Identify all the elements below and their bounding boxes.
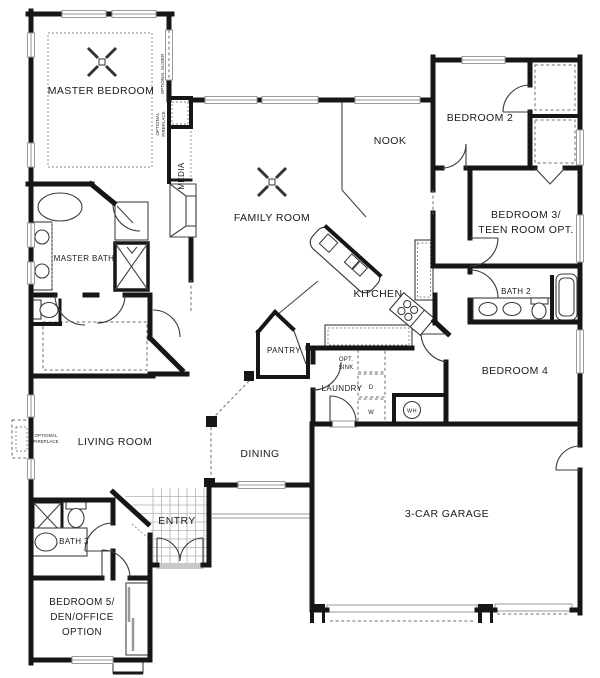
window [62, 11, 106, 18]
window [28, 143, 35, 167]
walls-layer [28, 11, 580, 663]
door-arc [113, 205, 140, 231]
door-arc [442, 144, 466, 168]
column-post [204, 478, 215, 487]
toilet-icon [40, 303, 58, 318]
label-opt-sink-1: OPT. [339, 357, 353, 363]
label-optional-fireplace-master-1: OPTIONAL [155, 112, 160, 135]
window [205, 97, 257, 104]
garage-entry-door [330, 421, 357, 427]
label-washer: W [368, 410, 374, 416]
column-post [244, 371, 254, 381]
window [262, 97, 318, 104]
label-optional-slider: OPTIONAL SLIDER [160, 54, 165, 95]
door-arc [102, 550, 130, 578]
label-bedroom3-line2: TEEN ROOM OPT. [478, 224, 573, 236]
garage-door-8ft [495, 604, 572, 611]
window [577, 215, 584, 262]
doors-layer [55, 85, 580, 578]
garage-door-16ft [327, 605, 477, 612]
door-arc [85, 523, 113, 551]
label-bath2: BATH 2 [501, 287, 531, 296]
entry-threshold [156, 563, 204, 569]
window [28, 33, 35, 57]
label-water-heater: WH [407, 409, 417, 415]
toilet-icon [68, 509, 84, 528]
door-arc [470, 270, 498, 298]
floor-plan-svg: MASTER BEDROOM FAMILY ROOM NOOK BEDROOM … [0, 0, 600, 678]
window [112, 11, 156, 18]
ceiling-fan-icon [258, 168, 286, 196]
optional-slider-window [166, 30, 173, 80]
sink-icon [479, 303, 497, 316]
label-bedroom5-line3: OPTION [62, 627, 102, 638]
label-master-bath: MASTER BATH [54, 254, 115, 263]
kitchen-island [307, 224, 384, 297]
window [28, 223, 35, 247]
optional-fireplace-living-box [12, 420, 31, 458]
door-arc [180, 538, 203, 561]
label-laundry: LAUNDRY [322, 384, 363, 393]
label-bedroom5-line2: DEN/OFFICE [50, 612, 113, 623]
label-opt-sink-2: SINK [339, 365, 354, 371]
window [577, 330, 584, 373]
door-arc [157, 538, 180, 561]
floor-plan-page: MASTER BEDROOM FAMILY ROOM NOOK BEDROOM … [0, 0, 600, 678]
window [462, 57, 505, 64]
label-garage: 3-CAR GARAGE [405, 508, 489, 520]
door-arc [97, 295, 125, 323]
label-kitchen: KITCHEN [354, 288, 403, 300]
label-optional-fireplace-master-2: FIREPLACE [161, 111, 166, 136]
door-arc [556, 446, 580, 470]
door-arc [470, 238, 498, 266]
closet-shelves [535, 65, 575, 110]
door-arc [330, 396, 356, 422]
label-bedroom3-line1: BEDROOM 3/ [491, 209, 561, 221]
window [28, 459, 35, 479]
window [28, 262, 35, 284]
label-optional-fireplace-living-1: OPTIONAL [34, 433, 57, 438]
door-arc [153, 310, 180, 337]
label-bedroom4: BEDROOM 4 [482, 365, 549, 377]
door-arc [503, 85, 530, 112]
sink-icon [35, 230, 49, 244]
label-bedroom5-line1: BEDROOM 5/ [49, 597, 115, 608]
label-dryer: D [369, 385, 374, 391]
sink-icon [35, 264, 49, 278]
door-arc [421, 334, 446, 362]
sink-icon [503, 303, 521, 316]
label-nook: NOOK [374, 135, 407, 147]
optional-sink-cabinet [358, 350, 385, 372]
bifold-door [535, 168, 565, 184]
label-family-room: FAMILY ROOM [234, 212, 310, 224]
window [28, 395, 35, 417]
window [355, 97, 420, 104]
window [238, 482, 285, 489]
optional-fireplace-master-box [172, 102, 188, 124]
label-bath3: BATH 3 [59, 537, 89, 546]
column-post [206, 416, 217, 427]
label-optional-fireplace-living-2: FIREPLACE [33, 439, 58, 444]
master-tub [38, 193, 82, 221]
label-pantry: PANTRY [267, 346, 301, 355]
closet-shelves [535, 120, 575, 163]
ceiling-fan-icon [88, 48, 116, 76]
window [72, 657, 113, 664]
label-master-bedroom: MASTER BEDROOM [48, 85, 155, 97]
label-media: MEDIA [177, 162, 186, 190]
sink-icon [35, 533, 57, 551]
label-dining: DINING [240, 448, 279, 460]
master-carpet-outline [48, 33, 152, 167]
tv-niche [170, 184, 196, 237]
stoop [113, 662, 143, 673]
label-living-room: LIVING ROOM [78, 436, 152, 448]
master-closet-shelves [43, 322, 147, 370]
window [577, 130, 584, 165]
toilet-icon [532, 303, 546, 319]
label-entry: ENTRY [158, 515, 195, 527]
label-bedroom2: BEDROOM 2 [447, 112, 514, 124]
